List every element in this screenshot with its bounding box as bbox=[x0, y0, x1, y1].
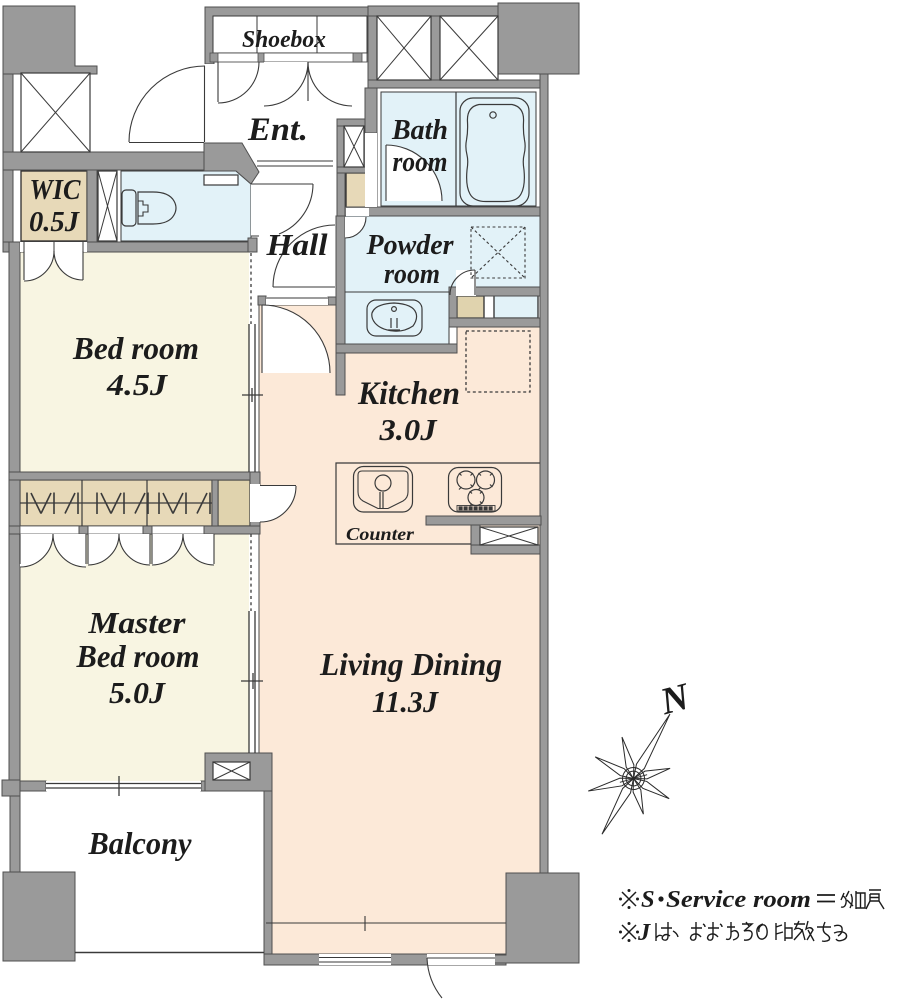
svg-text:Powder: Powder bbox=[366, 230, 455, 261]
svg-text:Counter: Counter bbox=[346, 524, 415, 544]
svg-text:4.5J: 4.5J bbox=[106, 367, 169, 402]
svg-text:WIC: WIC bbox=[30, 174, 82, 206]
svg-text:Hall: Hall bbox=[265, 227, 327, 262]
svg-text:Balcony: Balcony bbox=[88, 825, 193, 861]
svg-text:Bed room: Bed room bbox=[76, 639, 200, 674]
svg-text:Bath: Bath bbox=[391, 115, 448, 146]
svg-text:Bed room: Bed room bbox=[72, 331, 199, 366]
svg-text:J: J bbox=[637, 919, 651, 946]
svg-text:room: room bbox=[393, 147, 448, 178]
svg-text:room: room bbox=[384, 259, 440, 290]
svg-text:Master: Master bbox=[87, 605, 186, 640]
svg-text:S: S bbox=[641, 886, 655, 913]
svg-text:Shoebox: Shoebox bbox=[242, 27, 326, 53]
svg-text:0.5J: 0.5J bbox=[29, 207, 80, 238]
svg-text:3.0J: 3.0J bbox=[378, 412, 438, 447]
svg-text:Living Dining: Living Dining bbox=[319, 646, 502, 682]
svg-text:11.3J: 11.3J bbox=[372, 684, 439, 719]
svg-text:Service room: Service room bbox=[666, 886, 811, 913]
svg-text:Kitchen: Kitchen bbox=[357, 376, 460, 412]
svg-text:Ent.: Ent. bbox=[247, 112, 308, 148]
svg-text:5.0J: 5.0J bbox=[109, 675, 167, 710]
